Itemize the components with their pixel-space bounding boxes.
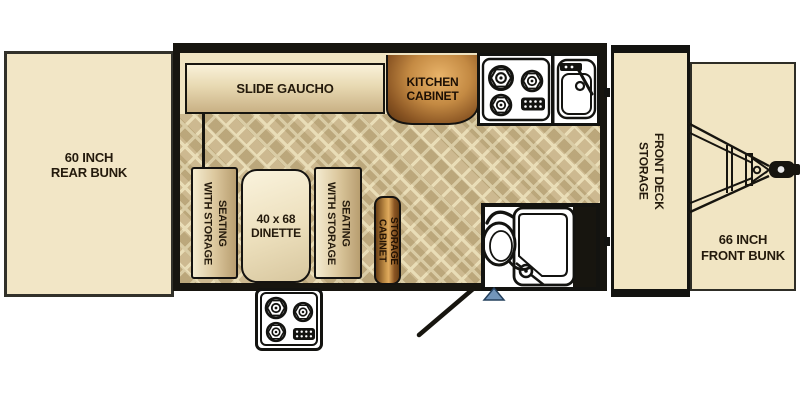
- seat-right-label: SEATING WITH STORAGE: [324, 182, 353, 265]
- storage-cabinet-label: STORAGE CABINET: [376, 217, 399, 265]
- slide-gaucho: SLIDE GAUCHO: [185, 63, 385, 114]
- door-swing-line: [419, 289, 473, 335]
- counter-divider: [551, 56, 555, 123]
- rear-bunk-label: 60 INCH REAR BUNK: [51, 150, 127, 181]
- front-bunk-label: 66 INCH FRONT BUNK: [701, 232, 785, 263]
- front-bunk-area: 66 INCH FRONT BUNK: [690, 62, 796, 291]
- bathroom: [481, 203, 600, 291]
- slide-gaucho-label: SLIDE GAUCHO: [236, 81, 333, 96]
- shower-icon: [514, 208, 574, 285]
- bathroom-fixtures: [485, 207, 596, 287]
- front-deck-storage-label: FRONT DECK STORAGE: [635, 133, 666, 210]
- cooktop-sink-icon: [480, 56, 597, 123]
- trailer-body: SLIDE GAUCHO KITCHEN CABINET: [173, 43, 607, 291]
- outside-stove: [255, 288, 323, 351]
- sink-icon: [558, 60, 595, 118]
- dinette-table: 40 x 68 DINETTE: [241, 169, 311, 283]
- outside-stove-icon: [258, 291, 320, 348]
- seat-right: SEATING WITH STORAGE: [314, 167, 362, 279]
- seat-left-label: SEATING WITH STORAGE: [200, 182, 229, 265]
- seat-left: SEATING WITH STORAGE: [191, 167, 238, 279]
- dinette-label: 40 x 68 DINETTE: [251, 212, 301, 240]
- grate-icon: [521, 98, 545, 111]
- wardrobe-block: [573, 207, 596, 287]
- rear-bunk-area: 60 INCH REAR BUNK: [4, 51, 174, 297]
- kitchen-cabinet: KITCHEN CABINET: [386, 55, 479, 125]
- kitchen-appliance-block: [477, 53, 600, 126]
- storage-cabinet: STORAGE CABINET: [374, 196, 401, 285]
- hinge-tick: [604, 237, 610, 246]
- hinge-tick: [604, 88, 610, 97]
- front-deck-storage: FRONT DECK STORAGE: [611, 45, 690, 297]
- slideout-boundary-line: [202, 114, 205, 169]
- floorplan-diagram: 60 INCH REAR BUNK SLIDE GAUCHO KITCHEN C…: [0, 0, 800, 400]
- trailer-interior: SLIDE GAUCHO KITCHEN CABINET: [180, 53, 600, 283]
- kitchen-cabinet-label: KITCHEN CABINET: [407, 75, 459, 103]
